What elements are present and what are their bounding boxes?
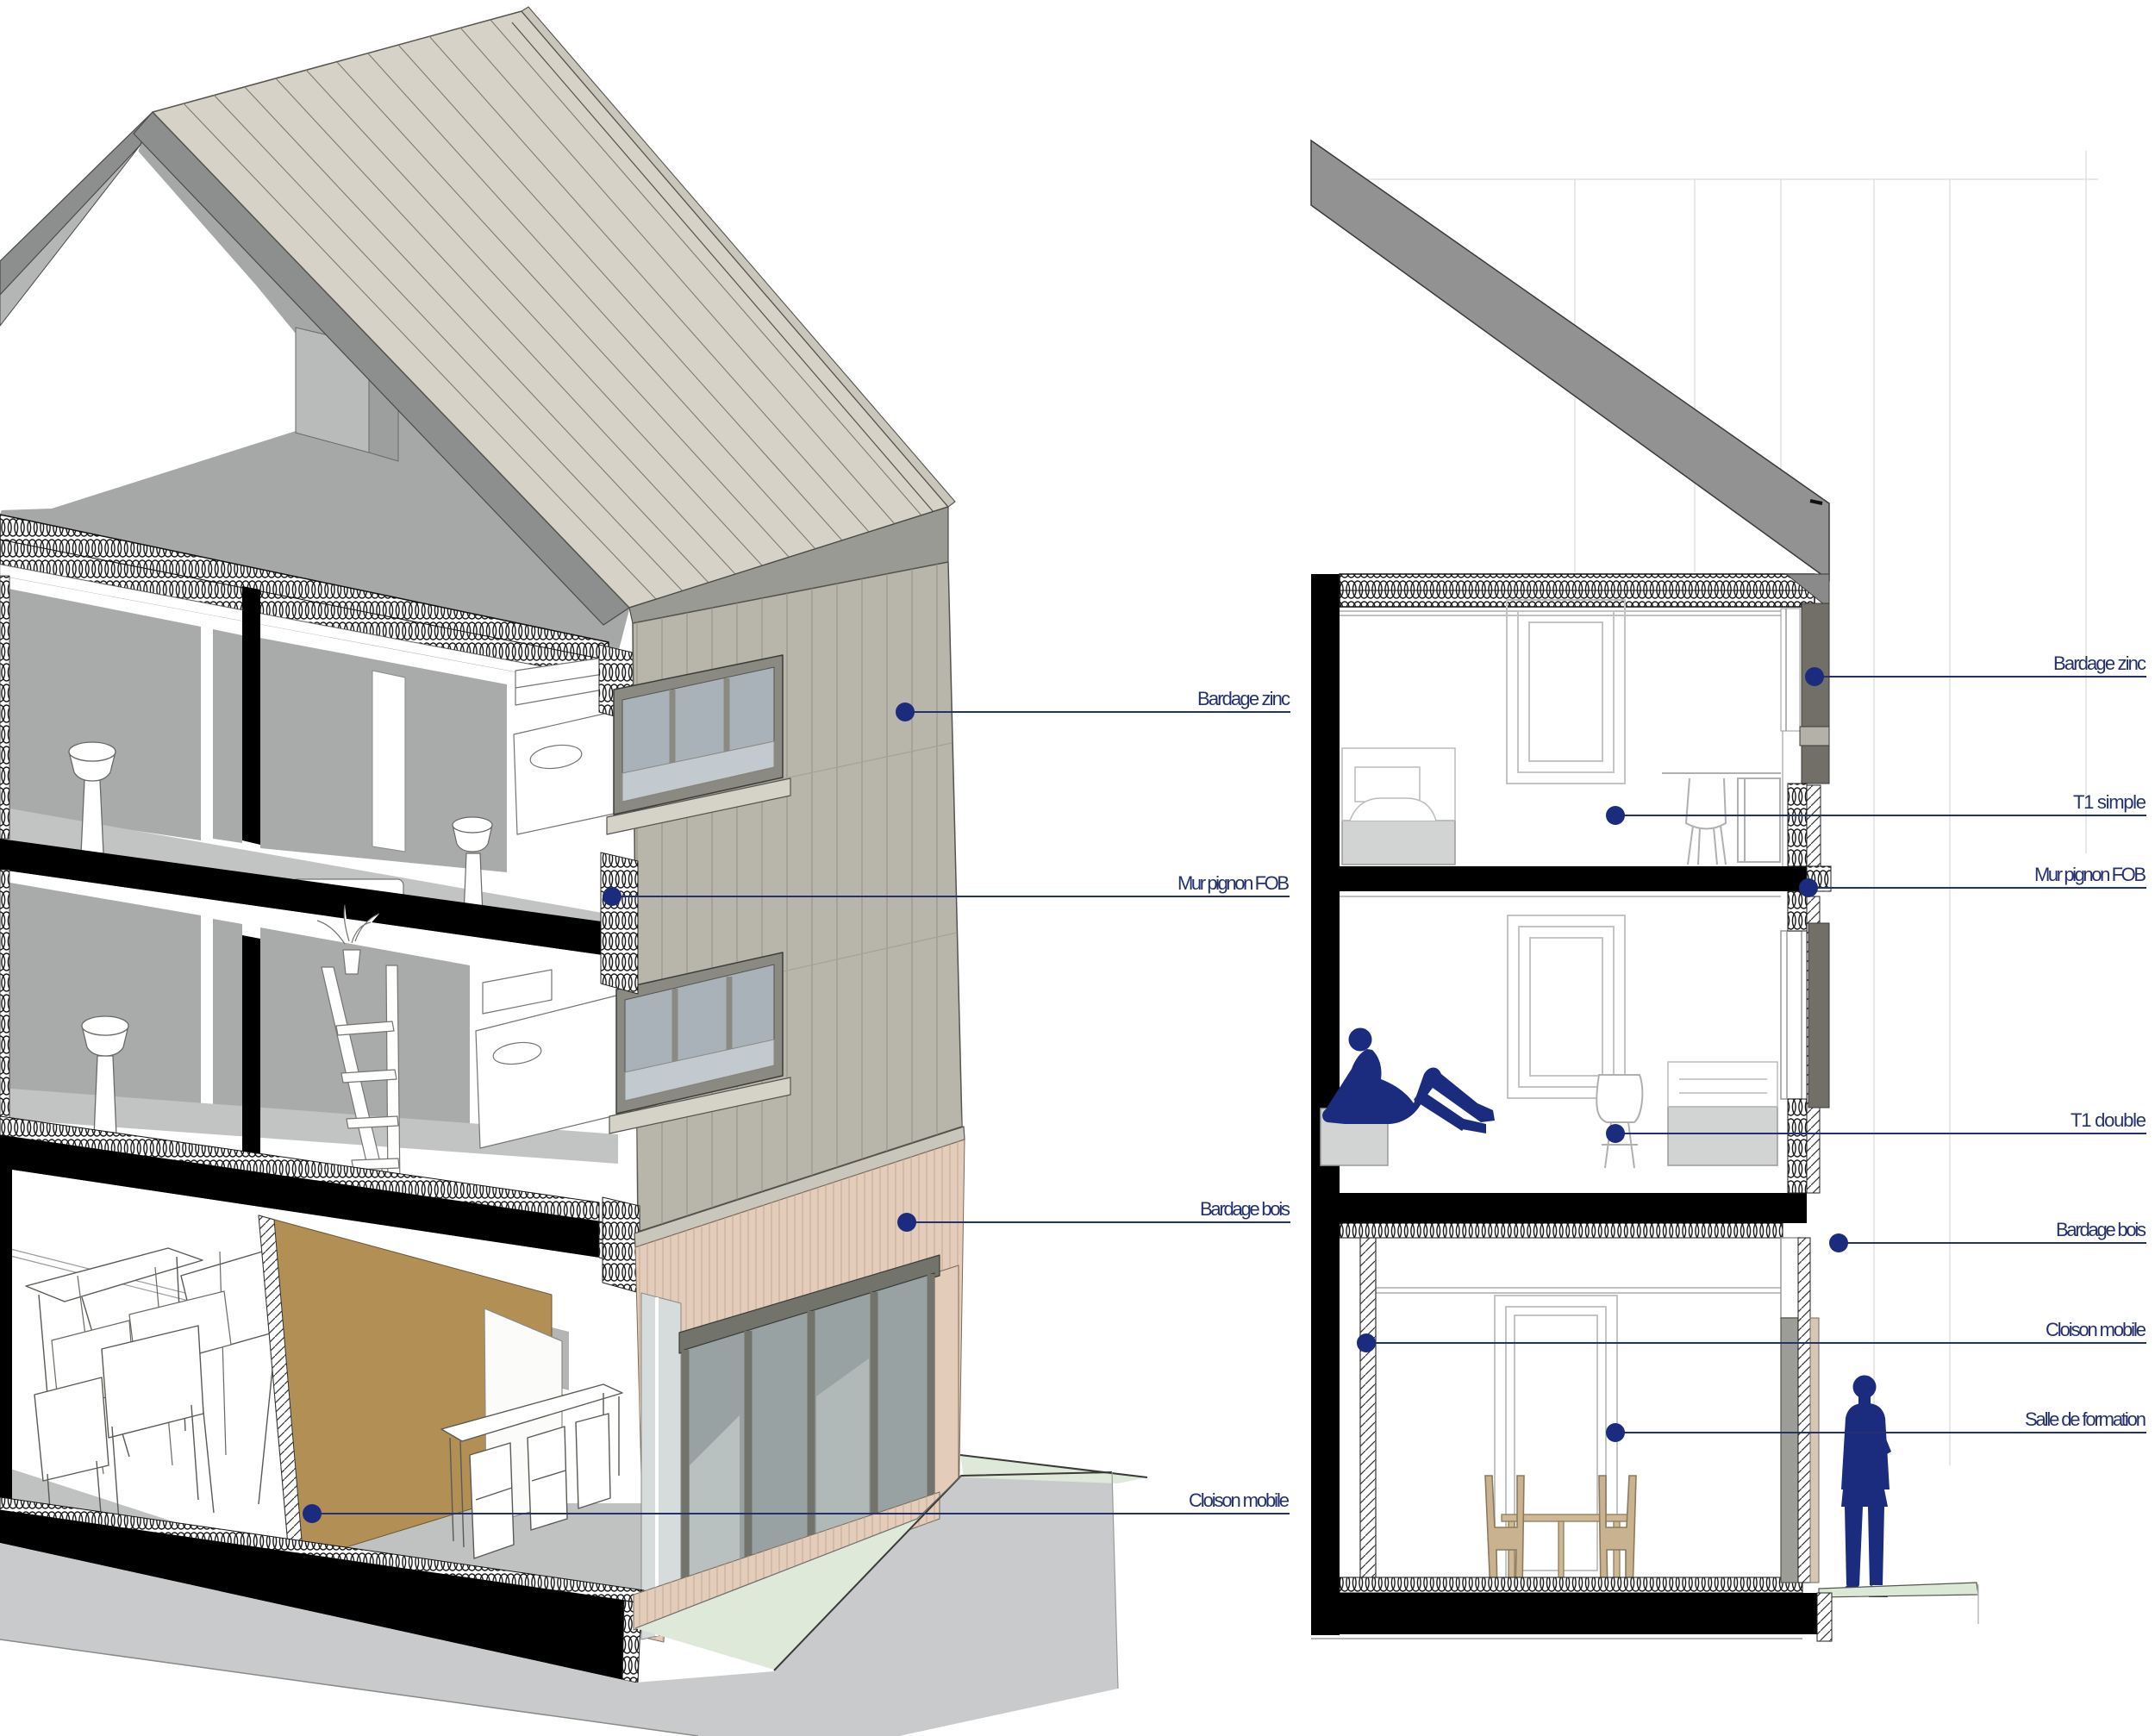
svg-text:Salle de formation: Salle de formation	[2025, 1408, 2146, 1430]
svg-text:Cloison mobile: Cloison mobile	[1189, 1489, 1290, 1511]
svg-text:T1 simple: T1 simple	[2073, 791, 2146, 813]
svg-text:Bardage zinc: Bardage zinc	[2053, 653, 2146, 674]
svg-text:Cloison mobile: Cloison mobile	[2046, 1319, 2146, 1340]
svg-text:Bardage zinc: Bardage zinc	[1197, 688, 1290, 709]
svg-text:Bardage bois: Bardage bois	[1200, 1198, 1290, 1220]
svg-text:Bardage bois: Bardage bois	[2056, 1219, 2146, 1240]
svg-text:T1 double: T1 double	[2071, 1109, 2146, 1131]
svg-text:Mur pignon FOB: Mur pignon FOB	[2034, 864, 2146, 885]
svg-text:Mur pignon FOB: Mur pignon FOB	[1177, 872, 1290, 894]
